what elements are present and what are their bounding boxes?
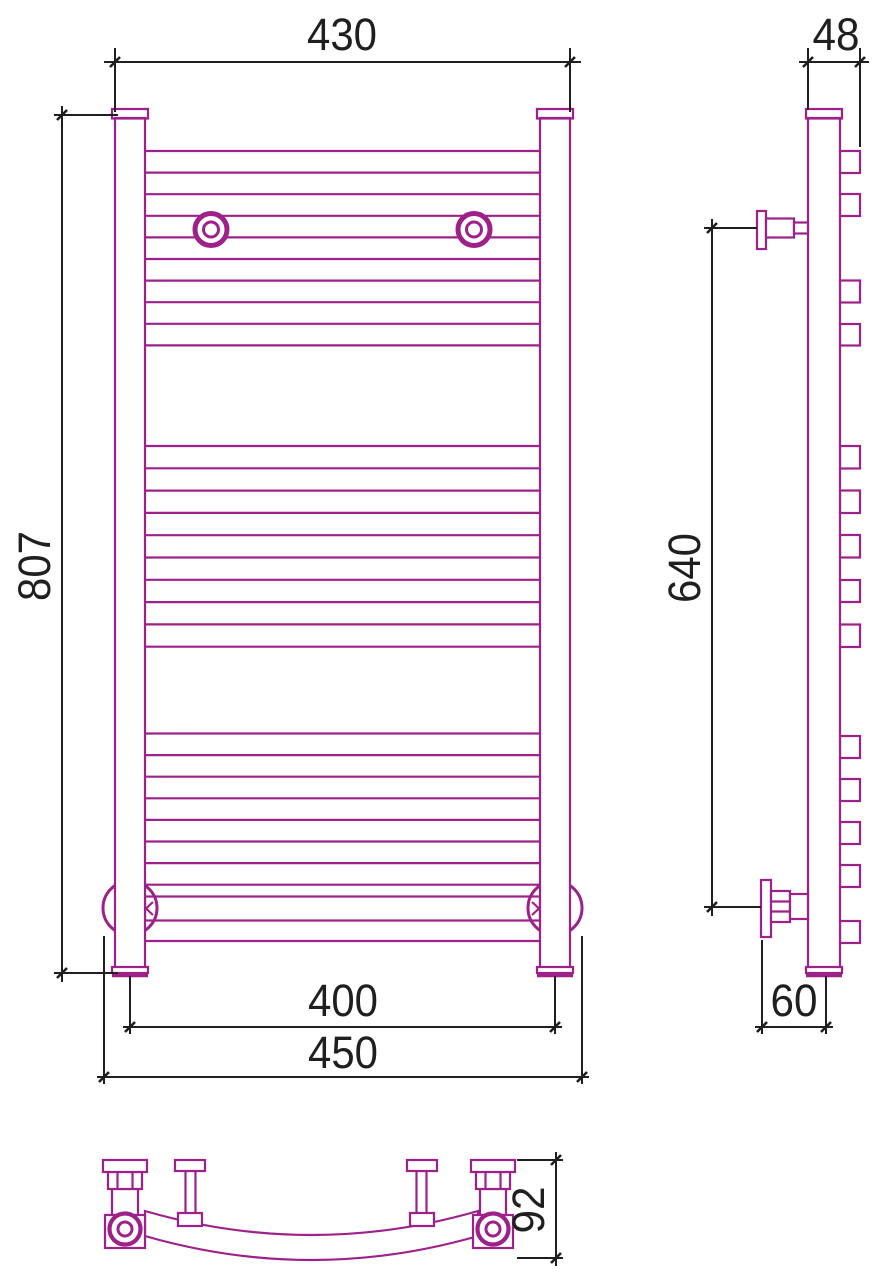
rung-stub <box>840 625 860 648</box>
dim-400: 400 <box>308 975 378 1026</box>
dim-430: 430 <box>307 9 377 60</box>
mid-bracket-left-flange <box>175 1160 205 1171</box>
dim-450: 450 <box>308 1027 378 1078</box>
top-bracket-left-hole <box>204 222 219 237</box>
left-fitting-nut <box>108 1172 142 1189</box>
left-fitting-port-hole <box>118 1222 132 1236</box>
side-bottom-fitting-stem <box>790 894 808 919</box>
rung-stub <box>840 194 860 216</box>
dim-92: 92 <box>503 1187 554 1234</box>
mid-bracket-right-foot <box>410 1213 434 1226</box>
right-fitting-port-hole <box>486 1222 500 1236</box>
rung-stub <box>840 736 860 758</box>
rung-stub <box>840 921 860 943</box>
rung-stub <box>840 151 860 173</box>
left-fitting-neck <box>112 1189 138 1215</box>
dim-60: 60 <box>771 975 818 1026</box>
rung-stub <box>840 491 860 514</box>
post-cap-bottom-right <box>537 967 573 973</box>
side-rung-stubs <box>840 151 860 943</box>
side-view <box>757 109 860 975</box>
side-bottom-fitting-flange <box>761 880 771 937</box>
left-fitting-flange <box>103 1160 147 1172</box>
front-post-right <box>540 118 570 968</box>
collector-tube <box>145 897 540 921</box>
dim-48: 48 <box>813 9 860 60</box>
front-post-left <box>115 118 145 968</box>
side-post-cap-bottom <box>806 967 842 973</box>
rung-stub <box>840 580 860 602</box>
rung-stub <box>840 822 860 844</box>
top-bracket-right-hole <box>467 222 482 237</box>
dim-807: 807 <box>9 531 60 601</box>
mid-bracket-right-flange <box>407 1160 437 1171</box>
side-top-bracket-neck <box>794 223 808 234</box>
rung-stub <box>840 281 860 303</box>
side-top-bracket-stem <box>766 219 794 238</box>
side-bottom-fitting-nut <box>771 891 790 922</box>
rung-stub <box>840 865 860 887</box>
side-post <box>808 118 840 968</box>
right-fitting-nut <box>476 1172 510 1189</box>
rung-stub <box>840 779 860 801</box>
right-fitting-flange <box>471 1160 515 1172</box>
dim-640: 640 <box>659 533 710 603</box>
side-top-bracket-flange <box>757 211 766 249</box>
front-rungs <box>145 151 540 885</box>
rung-stub <box>840 446 860 469</box>
front-view <box>103 109 582 975</box>
mid-bracket-left-foot <box>178 1213 202 1226</box>
rung-stub <box>840 535 860 558</box>
drawing-sheet: 430 48 807 640 400 450 60 <box>0 0 880 1280</box>
bottom-view <box>103 1160 515 1260</box>
radiator-technical-drawing: 430 48 807 640 400 450 60 <box>0 0 880 1280</box>
rung-stub <box>840 324 860 346</box>
